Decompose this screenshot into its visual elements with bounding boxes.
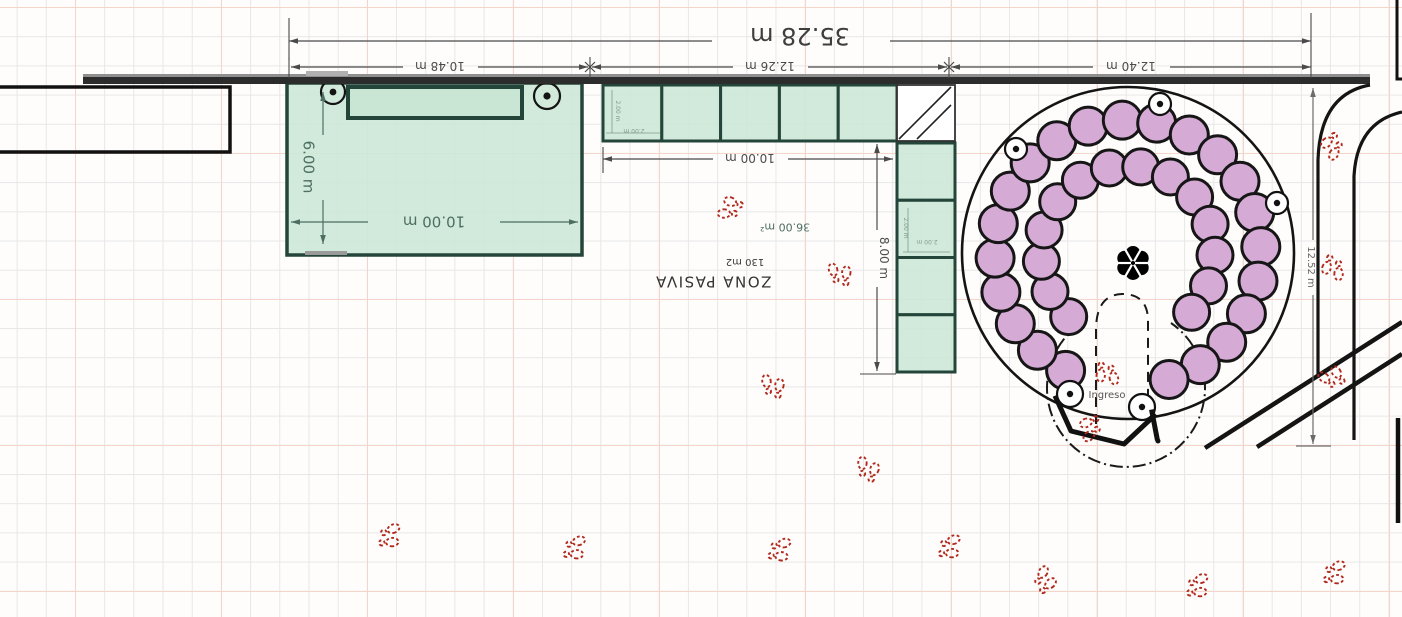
footprints-icon — [854, 455, 881, 483]
stage-zone-height-label: 6.00 m — [301, 141, 316, 194]
top-wall-edge — [83, 74, 1370, 77]
footprints-icon — [561, 535, 588, 561]
module-tiny-height-label-2: 2.00 m — [902, 217, 908, 238]
walls-layer — [0, 0, 1402, 523]
footprints-icon — [1320, 254, 1347, 282]
modules-width-label: 10.00 m — [725, 152, 775, 164]
footprints-icon — [766, 537, 792, 562]
table-circle — [976, 239, 1014, 277]
zone-area-label: 130 m2 — [726, 256, 764, 266]
right-wall-top — [1397, 0, 1402, 79]
module-square — [897, 258, 955, 315]
module-square — [897, 315, 955, 372]
module-tiny-width-label-2: 2.00 m — [916, 238, 937, 244]
module-tiny-width-label-1: 2.00 m — [623, 127, 644, 133]
dimension-total-width-label: 35.28 m — [750, 24, 850, 48]
footprints-icon — [1028, 563, 1061, 597]
module-square — [838, 85, 897, 141]
wall-gray-tick-top — [306, 71, 348, 76]
footprints-icon — [1094, 360, 1119, 386]
footprints-icon — [716, 195, 744, 222]
modules-area-label: 36.00 m² — [760, 222, 810, 233]
module-square — [721, 85, 780, 141]
floor-plan-canvas: 35.28 m 10.48 m 12.26 m 12.40 m 6.00 m 1… — [0, 0, 1402, 617]
modules-height-label: 8.00 m — [878, 237, 890, 279]
module-tiny-height-label-1: 2.00 m — [614, 100, 620, 121]
zone-name-label: ZONA PASIVA — [655, 274, 772, 289]
footprints-icon — [761, 374, 784, 398]
stage-zone-width-label: 10.00 m — [403, 214, 465, 229]
footprints-icon — [935, 533, 963, 560]
table-circle — [1069, 107, 1107, 145]
module-square — [779, 85, 838, 141]
table-circle — [1242, 228, 1280, 266]
circular-plaza-layer — [962, 87, 1294, 467]
floor-plan-drawing — [0, 0, 1402, 617]
table-circle — [982, 273, 1020, 311]
table-circle — [1150, 361, 1188, 399]
module-square — [897, 143, 955, 200]
footprints-icon — [1320, 559, 1348, 586]
parasol-icon — [1116, 246, 1150, 280]
table-circle — [1103, 101, 1141, 139]
green-zones-layer — [287, 80, 955, 372]
table-circle — [1174, 294, 1210, 330]
road-curve-inner — [1354, 112, 1402, 440]
hatched-square — [897, 85, 955, 141]
dimension-segment3-label: 12.40 m — [1106, 60, 1156, 72]
footprints-icon — [1183, 572, 1212, 600]
stage-table-rect — [348, 87, 522, 118]
column-marker-icon — [1266, 192, 1288, 214]
roads-layer — [1205, 85, 1402, 448]
dimension-segment2-label: 12.26 m — [745, 60, 795, 72]
wall-gray-tick-bottom — [305, 251, 347, 255]
entrance-label: Ingreso — [1088, 391, 1125, 401]
column-marker-icon — [1149, 93, 1171, 115]
footprints-icon — [375, 522, 404, 550]
module-square — [662, 85, 721, 141]
dimension-segment1-label: 10.48 m — [415, 60, 465, 72]
column-marker-icon — [1005, 138, 1027, 160]
left-room-outline — [0, 87, 230, 152]
right-height-label: 12.52 m — [1305, 246, 1315, 288]
footprints-icon — [827, 261, 852, 287]
road-curve-outer — [1318, 85, 1370, 378]
